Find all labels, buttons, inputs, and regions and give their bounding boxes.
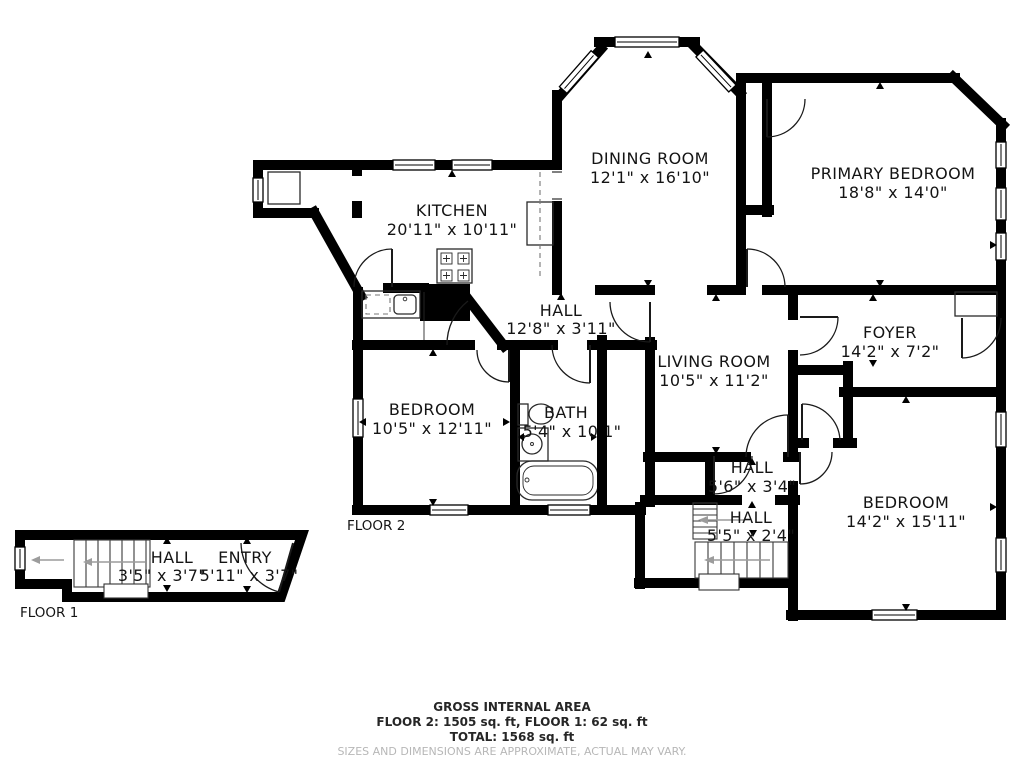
foyer-label: FOYER <box>863 323 917 342</box>
hall-dims: 12'8" x 3'11" <box>506 319 615 338</box>
porch-cabinet <box>268 172 300 204</box>
floor1-hall-dims: 3'5" x 3'7" <box>118 566 206 585</box>
hall-label: HALL <box>540 301 582 320</box>
floor1-entry-dims: 5'11" x 3'7" <box>200 566 299 585</box>
bedroom-left-label: BEDROOM <box>389 400 475 419</box>
footer-disclaimer: SIZES AND DIMENSIONS ARE APPROXIMATE, AC… <box>337 745 686 758</box>
floorplan-svg: KITCHEN 20'11" x 10'11" DINING ROOM 12'1… <box>0 0 1024 768</box>
foyer-closet-shelf <box>955 292 997 316</box>
stove-icon <box>437 249 472 283</box>
primary-bedroom-label: PRIMARY BEDROOM <box>811 164 976 183</box>
floor1-label: FLOOR 1 <box>20 605 78 621</box>
bathtub-icon <box>517 461 598 500</box>
hall-stairs-label: HALL <box>730 508 772 527</box>
floorplan-canvas: KITCHEN 20'11" x 10'11" DINING ROOM 12'1… <box>0 0 1024 768</box>
footer-total-area: TOTAL: 1568 sq. ft <box>450 730 575 744</box>
footer-floor-areas: FLOOR 2: 1505 sq. ft, FLOOR 1: 62 sq. ft <box>376 715 647 729</box>
floor2-label: FLOOR 2 <box>347 518 405 534</box>
bath-right-wall-overlay <box>597 336 607 512</box>
hall-upper-dims: 5'6" x 3'4" <box>708 477 796 496</box>
kitchen-dims: 20'11" x 10'11" <box>387 220 518 239</box>
floor1-entry-label: ENTRY <box>218 548 272 567</box>
hall-stairs-dims: 5'5" x 2'4" <box>707 526 795 545</box>
kitchen-sink-icon <box>362 291 424 340</box>
living-room-dims: 10'5" x 11'2" <box>659 371 768 390</box>
living-room-label: LIVING ROOM <box>657 352 770 371</box>
dining-room-dims: 12'1" x 16'10" <box>590 168 710 187</box>
bedroom-right-dims: 14'2" x 15'11" <box>846 512 966 531</box>
hall-upper-label: HALL <box>731 458 773 477</box>
kitchen-label: KITCHEN <box>416 201 488 220</box>
bedroom-right-label: BEDROOM <box>863 493 949 512</box>
bath-label: BATH <box>544 403 588 422</box>
footer-title: GROSS INTERNAL AREA <box>433 700 591 714</box>
footer: GROSS INTERNAL AREA FLOOR 2: 1505 sq. ft… <box>337 700 686 758</box>
primary-bedroom-dims: 18'8" x 14'0" <box>838 183 947 202</box>
bedroom-left-dims: 10'5" x 12'11" <box>372 419 492 438</box>
foyer-dims: 14'2" x 7'2" <box>841 342 940 361</box>
floor1-hall-label: HALL <box>151 548 193 567</box>
dining-room-label: DINING ROOM <box>591 149 709 168</box>
